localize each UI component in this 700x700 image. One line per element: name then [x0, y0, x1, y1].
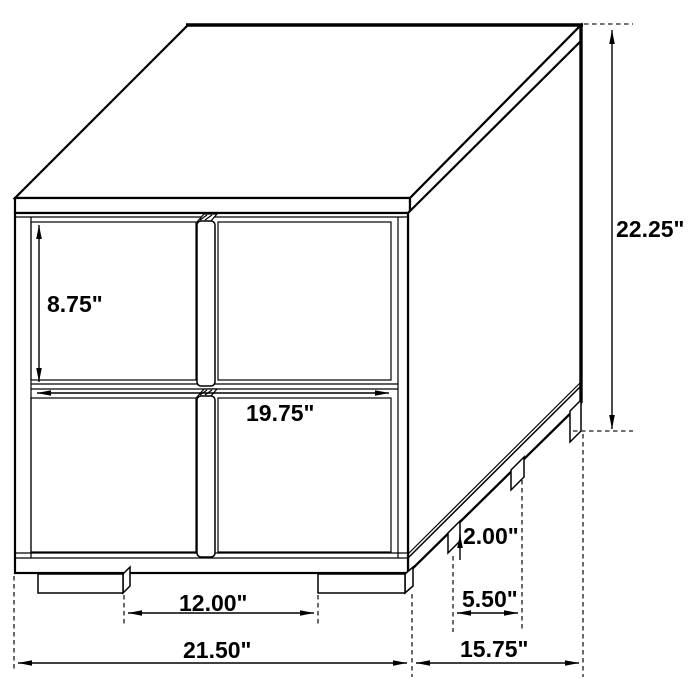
dimension-diagram-page: 8.75" 19.75" 22.25" 2.00" 5.50"	[0, 0, 700, 700]
dimension-overall-height: 22.25"	[573, 24, 684, 431]
top-front-edge	[15, 198, 410, 213]
drawer-handle-upper	[197, 214, 217, 386]
dim-label-overall-depth: 15.75"	[460, 636, 528, 662]
handle-lower-bar	[197, 396, 215, 557]
dim-label-drawer-width: 19.75"	[246, 400, 314, 426]
dim-label-overall-width: 21.50"	[183, 637, 251, 663]
dim-label-front-leg-gap: 12.00"	[179, 590, 247, 616]
handle-upper-bar	[197, 221, 215, 386]
dim-label-side-leg-gap: 5.50"	[462, 586, 518, 612]
dim-label-leg-height: 2.00"	[463, 523, 519, 549]
front-leg-left	[38, 574, 123, 593]
dimension-front-leg-gap: 12.00"	[124, 590, 318, 626]
drawer-handle-lower	[197, 389, 217, 557]
dim-label-overall-height: 22.25"	[616, 216, 684, 242]
nightstand-dimension-diagram: 8.75" 19.75" 22.25" 2.00" 5.50"	[0, 0, 700, 700]
front-leg-right	[318, 574, 405, 593]
dimension-leg-height: 2.00"	[460, 523, 519, 560]
dim-label-drawer-height: 8.75"	[47, 291, 103, 317]
nightstand-front	[15, 213, 413, 593]
